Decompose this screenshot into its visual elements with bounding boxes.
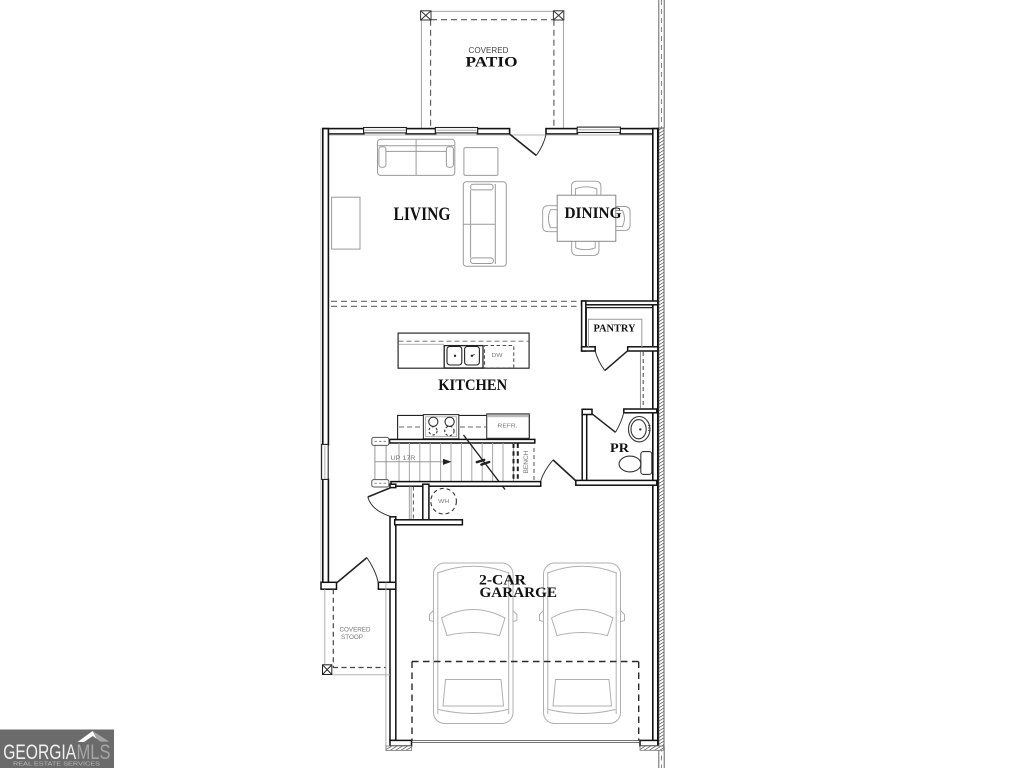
svg-text:WH: WH bbox=[438, 499, 449, 505]
svg-text:STOOP: STOOP bbox=[341, 634, 363, 641]
svg-text:PATIO: PATIO bbox=[466, 55, 518, 71]
svg-text:MLS: MLS bbox=[77, 740, 111, 764]
svg-text:REFR.: REFR. bbox=[498, 424, 519, 430]
svg-text:BENCH: BENCH bbox=[523, 450, 530, 473]
svg-text:DW: DW bbox=[492, 353, 504, 359]
svg-text:KITCHEN: KITCHEN bbox=[438, 377, 507, 394]
svg-text:GARARGE: GARARGE bbox=[480, 585, 558, 601]
svg-text:DINING: DINING bbox=[565, 205, 622, 222]
svg-text:PR: PR bbox=[610, 440, 630, 455]
svg-text:COVERED: COVERED bbox=[340, 627, 372, 634]
svg-text:UP 17R: UP 17R bbox=[391, 455, 416, 462]
svg-text:GEORGIA: GEORGIA bbox=[3, 740, 76, 764]
svg-text:LIVING: LIVING bbox=[394, 205, 451, 225]
svg-text:REAL ESTATE SERVICES: REAL ESTATE SERVICES bbox=[13, 762, 101, 768]
svg-text:PANTRY: PANTRY bbox=[594, 324, 636, 335]
